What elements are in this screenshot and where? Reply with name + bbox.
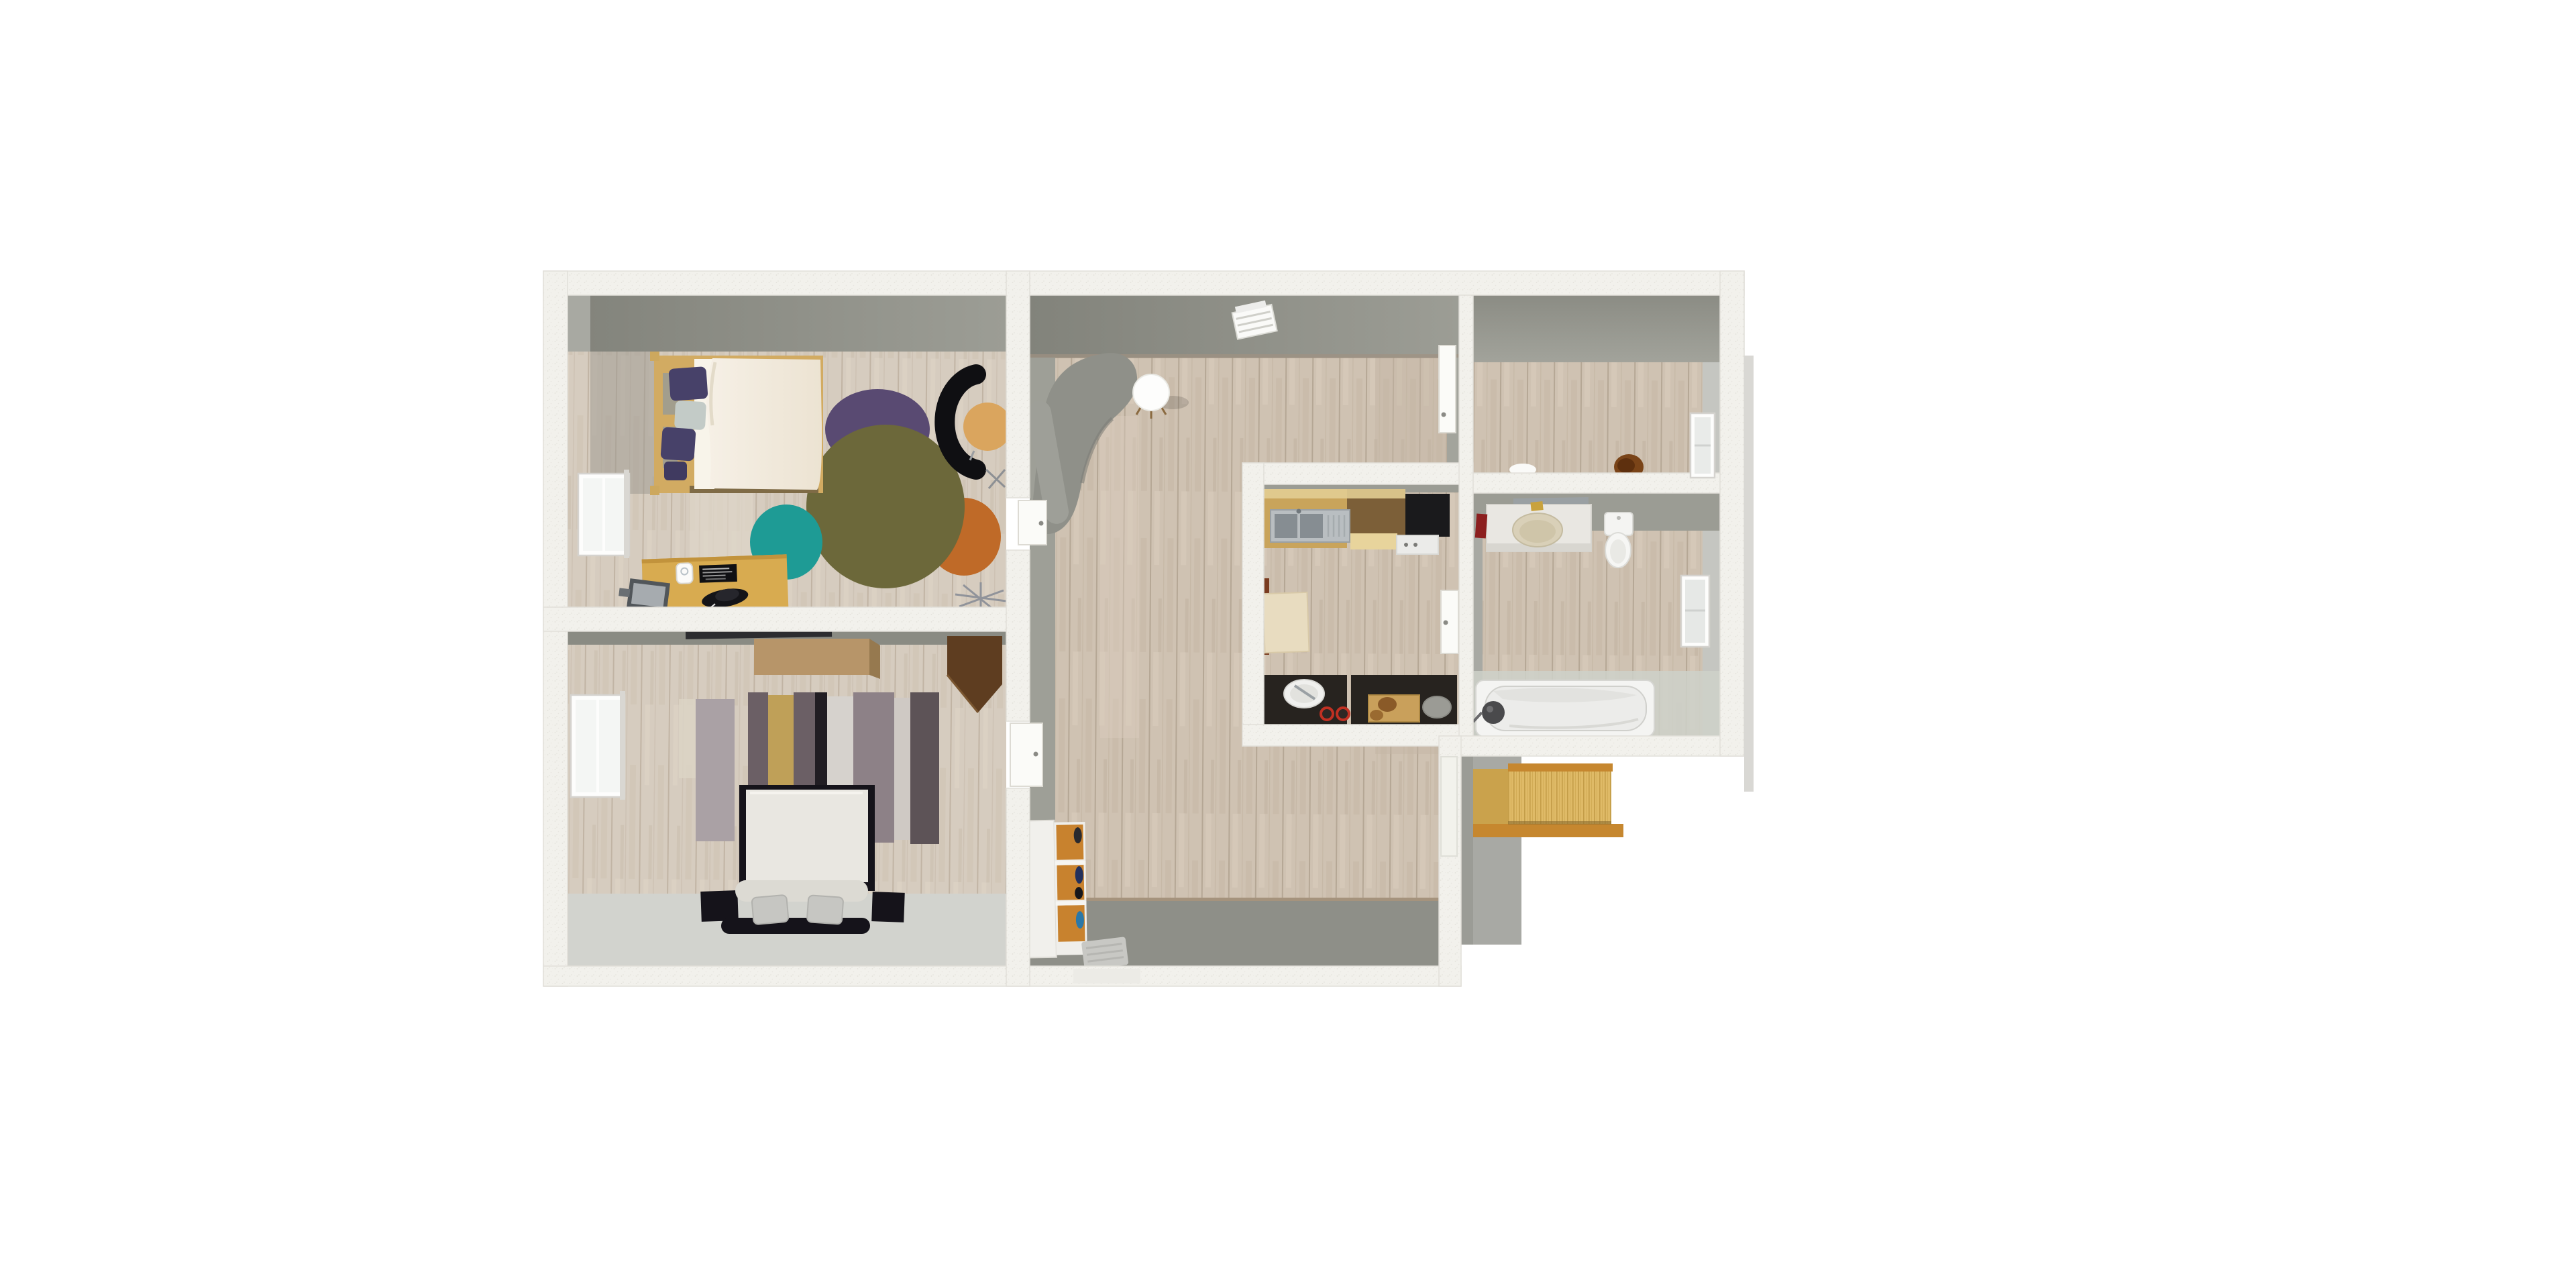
living-window-pane-1 [576, 700, 596, 792]
bedroom-corner-shadow [590, 352, 655, 494]
bed [650, 352, 823, 495]
wall-east-outer [1720, 271, 1744, 756]
fridge-black [1405, 494, 1450, 537]
kitchen-counters [1259, 489, 1450, 554]
balcony-bench [1473, 763, 1623, 837]
bedroom-window-pane-1 [583, 478, 602, 551]
room-storage [1473, 295, 1720, 473]
shower-head [1482, 701, 1505, 724]
door-mat [1081, 937, 1129, 970]
living-window-sill [620, 691, 625, 800]
pillow-purple-2 [660, 427, 696, 461]
balcony-door-leaf [1441, 757, 1457, 856]
bedroom-north-wall-face [568, 295, 1006, 352]
seat-cushion-left [751, 895, 788, 924]
sideboard-side [869, 639, 880, 679]
bench-top-rail [1508, 763, 1613, 772]
wall-right-block-west [1459, 295, 1473, 755]
seat-cushion-right [807, 895, 844, 924]
wall-north-outer [543, 271, 1744, 295]
counter-back-edge [1259, 489, 1405, 498]
rug-stripe-8 [894, 698, 910, 840]
hall-light-plank-strip [1100, 416, 1139, 738]
bedroom-door-handle [1039, 521, 1044, 526]
bench-side-panel [1473, 769, 1508, 825]
wall-kitchen-west [1242, 463, 1264, 746]
shelf-board-2 [1055, 901, 1086, 906]
double-sink-unit [1271, 509, 1350, 543]
bed-post-bottom [650, 486, 659, 495]
wall-bedroom-hall-upper [1006, 271, 1030, 498]
monitor-screen [631, 583, 665, 608]
vanity [1475, 497, 1591, 551]
bedroom-window-sill [624, 470, 629, 558]
counter-front-panel [1350, 533, 1397, 549]
wall-bathroom-south [1459, 736, 1744, 756]
storage-window-east [1690, 413, 1715, 478]
wall-east-outer-slab [1744, 356, 1754, 792]
keyboard-plaque [699, 564, 737, 583]
basket-inner [1617, 458, 1635, 473]
bedroom-window-west [578, 470, 629, 558]
rug-stripe-9 [910, 692, 939, 844]
living-window-pane-2 [599, 700, 620, 792]
round-pan [1423, 696, 1451, 718]
gold-tap [1530, 501, 1543, 511]
round-side-table [963, 403, 1012, 451]
wall-bedroom-living-divider [543, 607, 1030, 631]
bread-2 [1370, 710, 1383, 721]
toilet-seat [1610, 539, 1626, 564]
sideboard-body [754, 639, 869, 675]
bench-slats [1508, 772, 1611, 825]
wall-bedroom-hall-middle [1006, 550, 1030, 721]
small-dining-table [1263, 592, 1309, 653]
shower-head-highlight [1487, 706, 1493, 712]
sink-basin-2 [1300, 514, 1323, 538]
lamp-globe [1133, 374, 1169, 411]
bench-bottom-rail [1473, 824, 1623, 837]
pillow-purple-1 [668, 366, 708, 401]
wall-living-hall-lower [1006, 788, 1030, 986]
kitchen-black-counters [1264, 675, 1457, 725]
front-door [1073, 969, 1140, 984]
bathroom-window-east [1681, 576, 1709, 647]
sink-basin-1 [1275, 514, 1297, 538]
beige-basin-inner [1519, 520, 1556, 543]
speaker-right [871, 892, 905, 922]
sideboard-tan [754, 639, 880, 679]
shelf-board-1 [1055, 861, 1085, 865]
rug-stripe-1 [696, 699, 735, 841]
storage-north-wall-face [1473, 295, 1720, 362]
sofa-base [721, 918, 870, 934]
bed-duvet [706, 358, 822, 490]
speaker-left [700, 890, 739, 922]
bench-shadow-line [1508, 821, 1611, 825]
pillow-pale [674, 401, 706, 430]
bathtub [1473, 680, 1654, 737]
stove-knob-1 [1404, 543, 1408, 547]
storage-floor [1473, 362, 1720, 473]
red-towel [1475, 513, 1487, 538]
storage-door-handle [1442, 413, 1446, 417]
kitchen-door-handle [1444, 621, 1448, 625]
hob-ring-2 [1337, 708, 1349, 720]
toilet-button [1617, 516, 1621, 520]
screenshot-canvas [0, 0, 2576, 1274]
plaque-body [699, 564, 737, 583]
stove-knob-2 [1413, 543, 1417, 547]
bread-1 [1378, 697, 1397, 712]
round-basin-inner [1290, 684, 1318, 703]
bedroom-window-pane-2 [605, 478, 625, 551]
sink-tap [1297, 509, 1301, 514]
desk-dispenser [676, 563, 693, 584]
wall-south-outer [543, 966, 1461, 986]
hob-ring-1 [1321, 708, 1333, 720]
balcony-wall-face [1461, 756, 1473, 945]
monitor-stand [619, 588, 630, 597]
storage-door-leaf [1439, 346, 1456, 433]
living-window-west [571, 691, 625, 800]
bed-post-top [650, 352, 659, 361]
living-room-door-handle [1034, 752, 1038, 757]
pillow-purple-3 [664, 462, 687, 480]
wall-kitchen-north [1242, 463, 1473, 484]
floor-plan-render [0, 0, 2576, 1274]
toilet [1605, 513, 1633, 568]
sofa-back-white [746, 790, 868, 882]
